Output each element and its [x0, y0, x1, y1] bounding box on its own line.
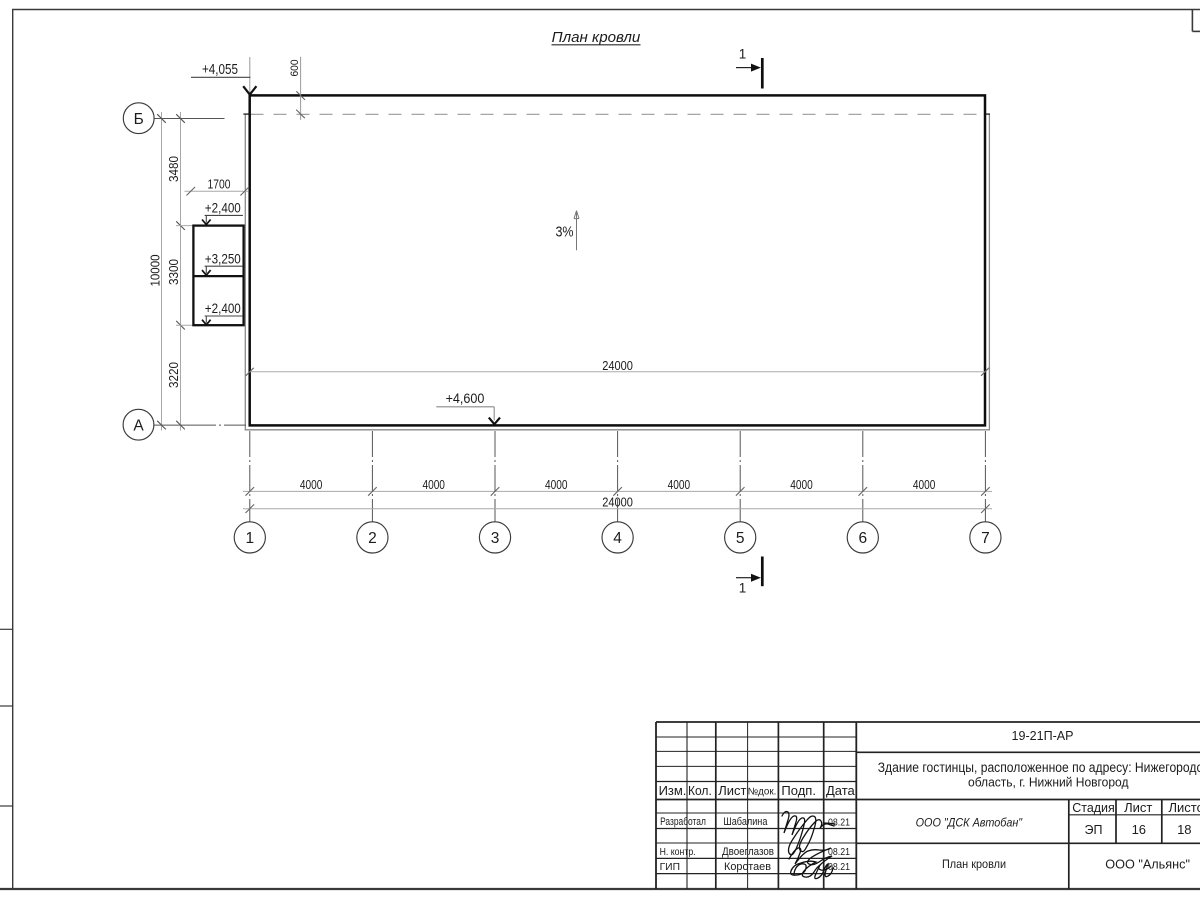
svg-text:3480: 3480: [166, 156, 181, 182]
svg-text:Кол.: Кол.: [688, 783, 712, 798]
svg-text:ООО "Альянс": ООО "Альянс": [1105, 857, 1190, 872]
svg-text:Дата: Дата: [826, 783, 856, 798]
svg-text:+4,600: +4,600: [446, 390, 485, 406]
svg-text:3%: 3%: [555, 225, 573, 241]
svg-text:Подп.: Подп.: [781, 783, 816, 798]
svg-text:Шабалина: Шабалина: [723, 816, 768, 828]
svg-text:Стадия: Стадия: [1072, 800, 1115, 815]
svg-text:Н. контр.: Н. контр.: [660, 846, 696, 858]
svg-text:№док.: №док.: [748, 787, 777, 798]
svg-text:1: 1: [739, 47, 747, 62]
svg-text:План кровли: План кровли: [552, 30, 641, 46]
svg-text:4000: 4000: [545, 477, 568, 492]
svg-text:3220: 3220: [166, 362, 181, 388]
svg-text:08.21: 08.21: [828, 862, 850, 873]
svg-text:6: 6: [858, 530, 867, 547]
svg-text:4000: 4000: [668, 477, 691, 492]
svg-text:Листов: Листов: [1169, 800, 1200, 815]
svg-text:область, г. Нижний Новгород: область, г. Нижний Новгород: [968, 774, 1129, 789]
svg-text:4000: 4000: [300, 477, 323, 492]
svg-text:А: А: [133, 417, 144, 434]
svg-text:1: 1: [245, 530, 254, 547]
svg-text:+2,400: +2,400: [205, 201, 241, 216]
svg-text:План кровли: План кровли: [942, 857, 1006, 871]
svg-text:Коротаев: Коротаев: [724, 861, 771, 873]
svg-text:4: 4: [613, 530, 622, 547]
svg-text:ЭП: ЭП: [1085, 823, 1103, 837]
svg-text:10000: 10000: [148, 255, 163, 287]
svg-text:18: 18: [1177, 822, 1191, 837]
svg-text:Лист: Лист: [718, 783, 746, 798]
svg-text:3300: 3300: [166, 259, 181, 285]
svg-text:24000: 24000: [602, 358, 633, 373]
svg-text:2: 2: [368, 530, 377, 547]
svg-text:ГИП: ГИП: [660, 861, 680, 873]
svg-text:19-21П-АР: 19-21П-АР: [1012, 728, 1074, 743]
svg-text:24000: 24000: [602, 495, 633, 510]
svg-text:4000: 4000: [422, 477, 445, 492]
svg-text:Здание гостинцы, расположенное: Здание гостинцы, расположенное по адресу…: [878, 760, 1200, 775]
svg-text:Лист: Лист: [1124, 800, 1152, 815]
svg-text:4000: 4000: [913, 477, 936, 492]
svg-text:5: 5: [736, 530, 745, 547]
svg-text:1700: 1700: [208, 178, 231, 192]
svg-text:4000: 4000: [790, 477, 813, 492]
svg-text:ООО "ДСК Автобан": ООО "ДСК Автобан": [916, 816, 1023, 830]
svg-text:Изм.: Изм.: [659, 783, 687, 798]
svg-text:+3,250: +3,250: [205, 251, 241, 266]
svg-text:7: 7: [981, 530, 990, 547]
svg-text:08.21: 08.21: [828, 817, 850, 828]
svg-text:3: 3: [491, 530, 500, 547]
svg-text:600: 600: [289, 60, 301, 77]
svg-text:Б: Б: [134, 111, 144, 128]
svg-text:+4,055: +4,055: [202, 62, 238, 78]
svg-text:Разработал: Разработал: [660, 816, 706, 828]
svg-text:16: 16: [1132, 822, 1146, 837]
svg-text:1: 1: [739, 581, 747, 596]
svg-text:+2,400: +2,400: [205, 301, 241, 316]
svg-text:Двоеглазов: Двоеглазов: [722, 846, 774, 858]
